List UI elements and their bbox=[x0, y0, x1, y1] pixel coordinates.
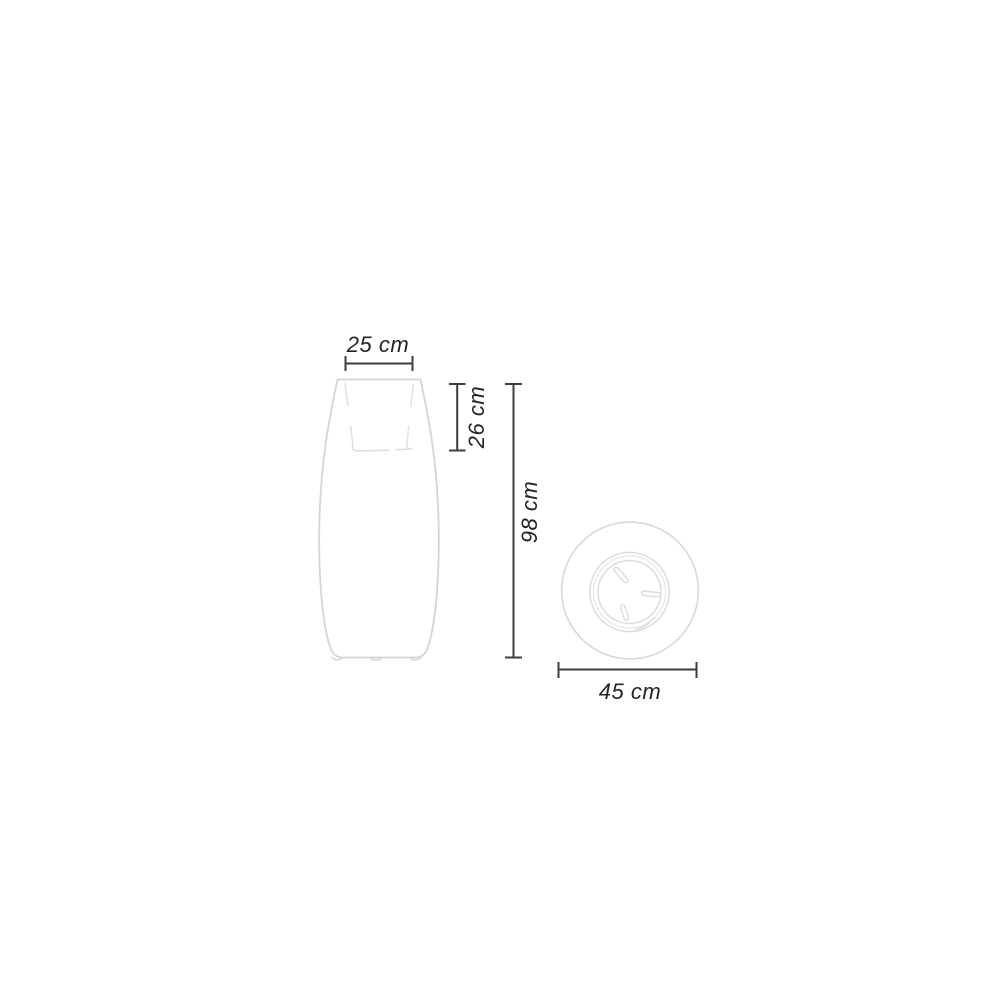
top-view-outer-rim-circle bbox=[562, 522, 699, 659]
top-view-tab-upper-left bbox=[613, 566, 629, 583]
dimension-label-opening-width: 25 cm bbox=[347, 334, 409, 356]
dimension-line-opening-width bbox=[346, 356, 413, 371]
dimension-label-diameter: 45 cm bbox=[599, 681, 661, 703]
dimension-label-inner-depth: 26 cm bbox=[466, 386, 488, 448]
planter-top-view bbox=[562, 522, 699, 659]
dimension-label-total-height: 98 cm bbox=[519, 481, 541, 543]
planter-technical-drawing bbox=[0, 0, 1000, 1000]
top-view-tab-right bbox=[641, 591, 660, 597]
top-view-tab-lower-left bbox=[620, 604, 629, 621]
planter-side-view bbox=[319, 380, 439, 661]
dimension-drawing-canvas: 25 cm 26 cm 98 cm 45 cm bbox=[0, 0, 1000, 1000]
planter-cavity-bottom-dashed bbox=[352, 447, 412, 451]
dimension-line-diameter bbox=[559, 662, 697, 678]
planter-inner-cavity-walls bbox=[345, 384, 414, 447]
planter-body-outline bbox=[319, 380, 439, 658]
